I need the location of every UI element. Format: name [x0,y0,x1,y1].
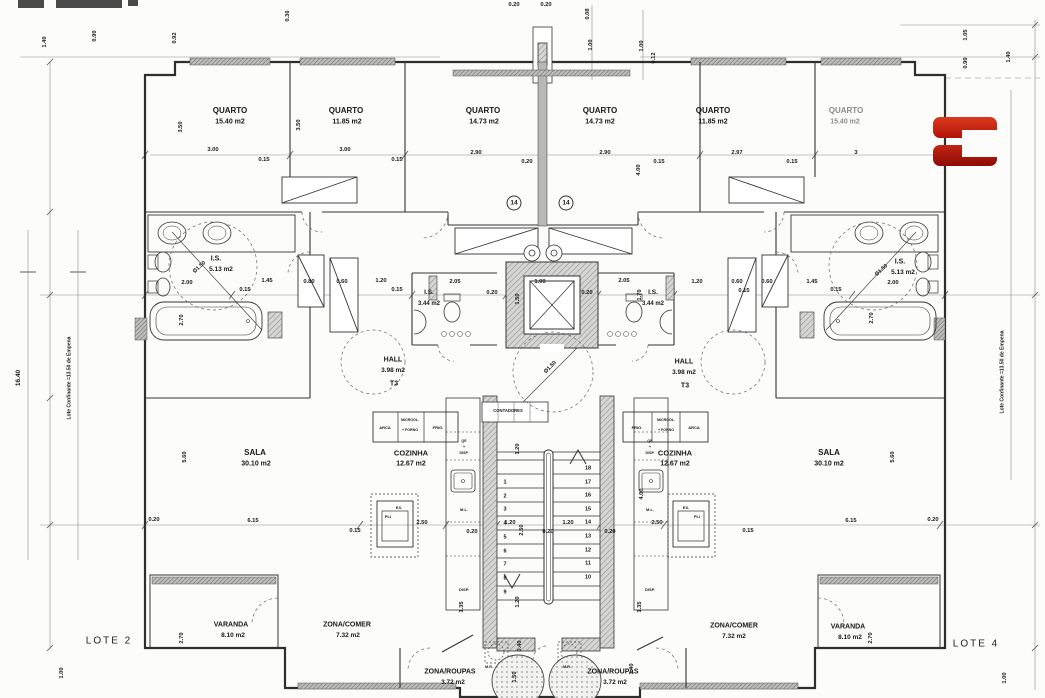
floor-plan-drawing [0,0,1045,698]
floor-plan: QUARTO15.40 m2QUARTO11.85 m2QUARTO14.73 … [0,0,1045,698]
company-logo-c [933,117,998,166]
elevator [506,245,598,352]
chimney-shaft [533,27,552,226]
lote-4-label: LOTE 4 [953,639,999,650]
lote-2-label: LOTE 2 [86,636,132,647]
scan-artifact [18,0,138,8]
kitchen-fixtures [371,412,715,557]
contadores-box [482,402,548,422]
staircase [483,396,614,651]
utility-closets [446,398,668,610]
